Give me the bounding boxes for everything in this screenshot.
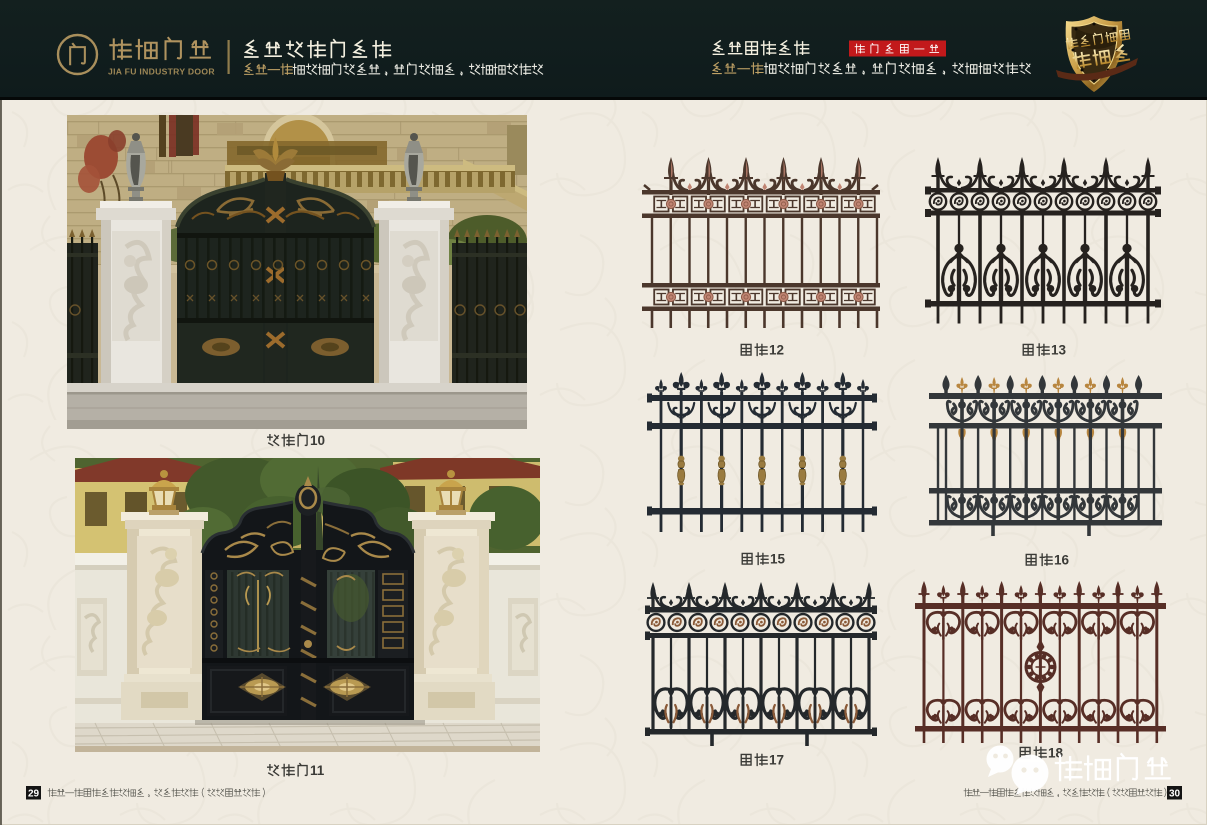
svg-text:17: 17 [769, 753, 784, 768]
svg-text:16: 16 [1054, 553, 1070, 568]
svg-text:13: 13 [1051, 343, 1067, 358]
svg-text:29: 29 [28, 789, 40, 800]
svg-text:12: 12 [769, 343, 784, 358]
svg-text:15: 15 [770, 552, 786, 567]
svg-text:11: 11 [310, 763, 325, 778]
svg-text:10: 10 [310, 433, 325, 448]
